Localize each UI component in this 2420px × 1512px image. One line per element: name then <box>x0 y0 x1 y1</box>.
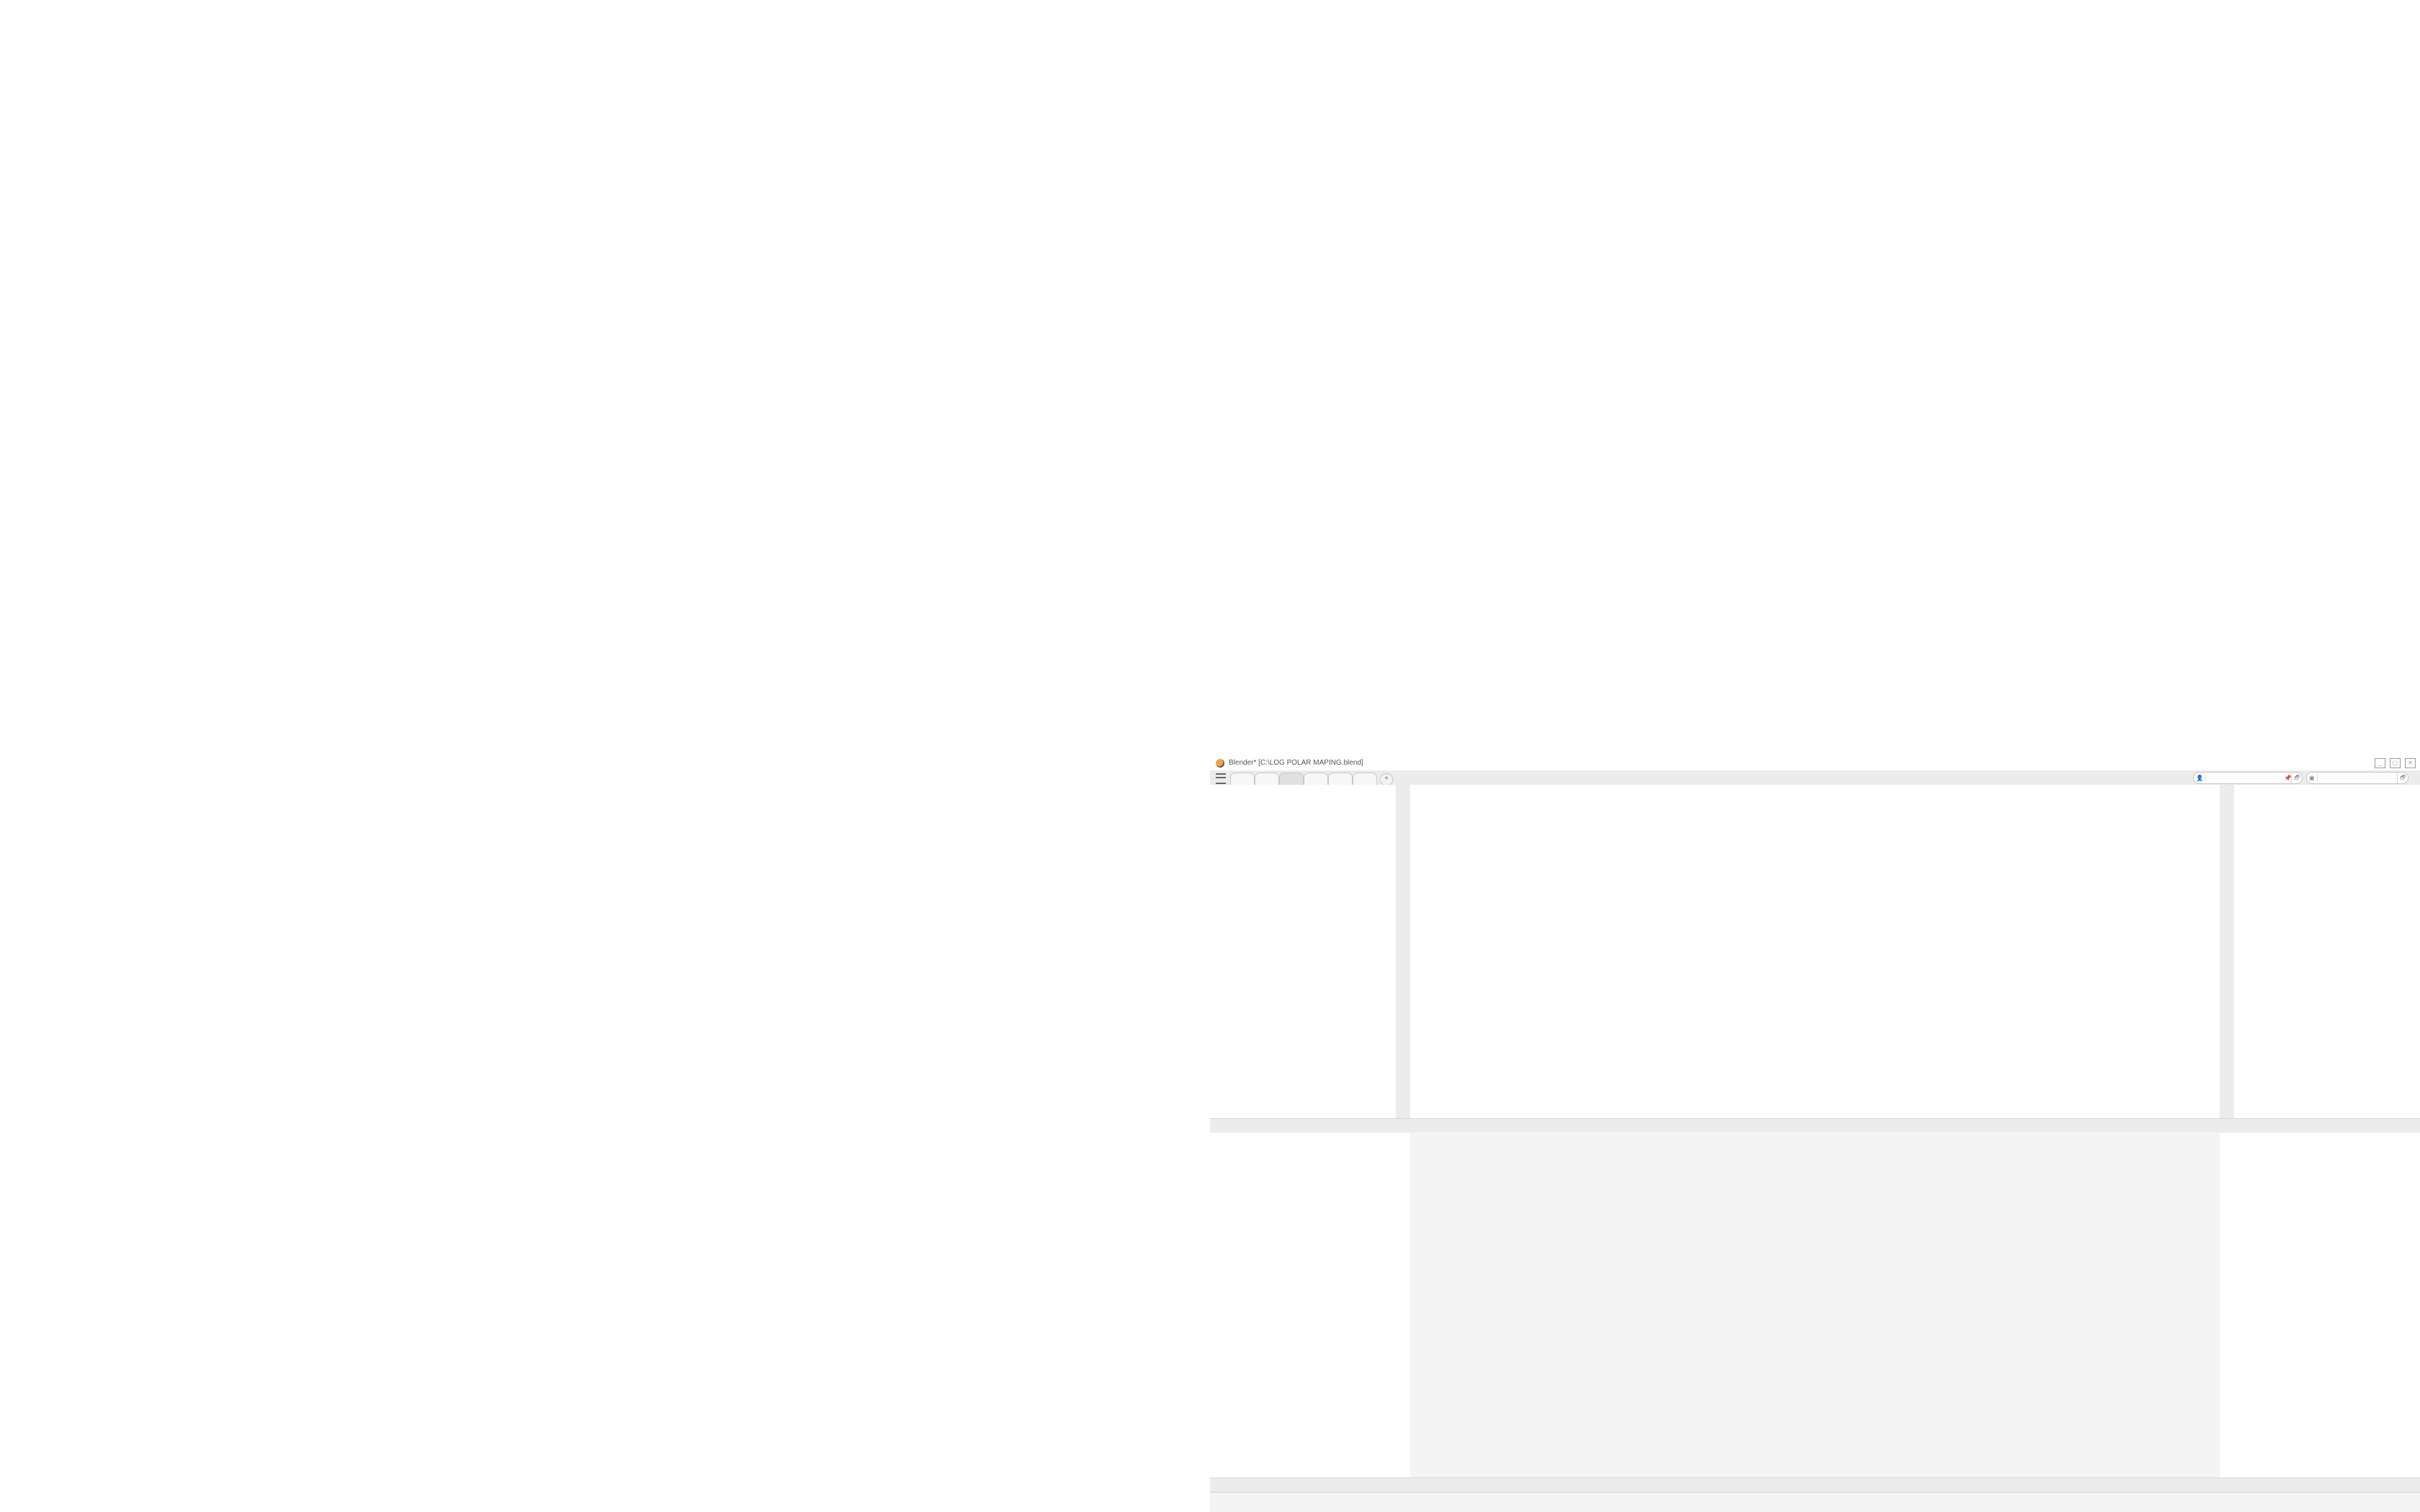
viewlayer-icon: ▣ <box>2307 775 2318 781</box>
hamburger-menu-icon[interactable] <box>1216 773 1226 784</box>
os-taskbar <box>1210 1492 2420 1512</box>
top-band-headers <box>1210 1118 2420 1134</box>
close-button[interactable]: ✕ <box>2405 758 2416 768</box>
quadrant-bottom-left-mirrored <box>0 756 1210 1512</box>
quadrant-top-right-mirrored <box>1210 0 2420 756</box>
properties-tab-strip-right[interactable] <box>2220 785 2234 1122</box>
blender-logo-icon <box>1216 759 1224 768</box>
bottom-band-headers <box>1210 1477 2420 1493</box>
quadrant-bottom-right-original: Blender* [C:\LOG POLAR MAPING.blend] _ ▢… <box>1210 756 2420 1512</box>
window-title: Blender* [C:\LOG POLAR MAPING.blend] <box>1229 759 1363 767</box>
minimize-button[interactable]: _ <box>2375 758 2385 768</box>
workspace-tab[interactable] <box>1230 773 1255 786</box>
maximize-button[interactable]: ▢ <box>2390 758 2401 768</box>
node-editor[interactable] <box>1410 1133 2220 1477</box>
workspace-tab[interactable] <box>1255 773 1279 786</box>
properties-editor-camera <box>2234 785 2420 1118</box>
window-titlebar: Blender* [C:\LOG POLAR MAPING.blend] _ ▢… <box>1210 756 2420 770</box>
outliner-blender-file <box>1210 1133 1410 1477</box>
scene-selector[interactable]: 👤 📌 🗗 <box>2193 772 2303 784</box>
viewlayer-selector[interactable]: ▣ 🗗 <box>2306 772 2408 784</box>
scene-icon: 👤 <box>2194 775 2206 781</box>
workspace-tab[interactable] <box>1304 773 1328 786</box>
copy-icon[interactable]: 🗗 <box>2291 773 2302 783</box>
workspace-tab[interactable] <box>1328 773 1353 786</box>
copy-icon[interactable]: 🗗 <box>2397 773 2408 783</box>
workspace-tabrow: + 👤 📌 🗗 ▣ 🗗 <box>1210 770 2420 786</box>
add-workspace-button[interactable]: + <box>1380 773 1393 786</box>
blender-window: Blender* [C:\LOG POLAR MAPING.blend] _ ▢… <box>1210 756 2420 1512</box>
outliner-view-layers <box>2220 1133 2420 1477</box>
desktop-mosaic: Blender* [C:\LOG POLAR MAPING.blend] _ ▢… <box>0 0 2420 1512</box>
properties-tab-strip-left[interactable] <box>1396 785 1410 1122</box>
pin-icon[interactable]: 📌 <box>2285 775 2292 781</box>
properties-editor-output <box>1210 785 1396 1118</box>
workspace-tab[interactable] <box>1279 773 1304 786</box>
viewport-3d[interactable] <box>1410 785 2220 1118</box>
workspace-tab[interactable] <box>1353 773 1377 786</box>
quadrant-top-left-mirrored <box>0 0 1210 756</box>
